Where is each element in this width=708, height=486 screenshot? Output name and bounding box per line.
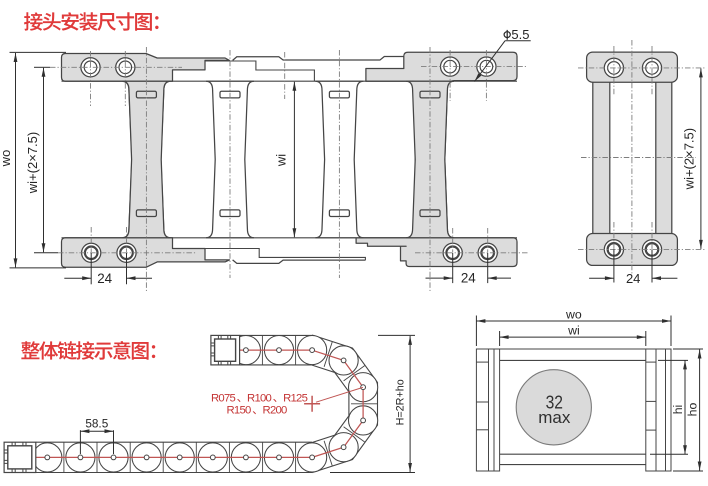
svg-text:5.5: 5.5 [511, 27, 529, 42]
svg-text:58.5: 58.5 [85, 417, 108, 431]
svg-text:H=2R+ho: H=2R+ho [395, 379, 407, 425]
svg-text:24: 24 [626, 271, 640, 286]
svg-text:ho: ho [685, 403, 699, 417]
svg-text:R125: R125 [283, 392, 308, 404]
svg-text:R075: R075 [211, 392, 236, 404]
svg-text:wi+(2×7.5): wi+(2×7.5) [681, 128, 696, 190]
svg-text:max: max [538, 408, 571, 427]
svg-text:R200: R200 [263, 405, 288, 417]
svg-text:24: 24 [97, 271, 112, 286]
svg-text:wo: wo [565, 308, 582, 322]
svg-text:24: 24 [461, 271, 476, 286]
svg-text:wo: wo [0, 150, 13, 168]
svg-text:R150: R150 [227, 405, 252, 417]
svg-text:wi+(2×7.5): wi+(2×7.5) [25, 132, 40, 194]
svg-text:wi: wi [567, 323, 580, 337]
svg-text:wi: wi [274, 154, 289, 167]
svg-text:hi: hi [671, 405, 685, 415]
svg-text:R100: R100 [247, 392, 272, 404]
